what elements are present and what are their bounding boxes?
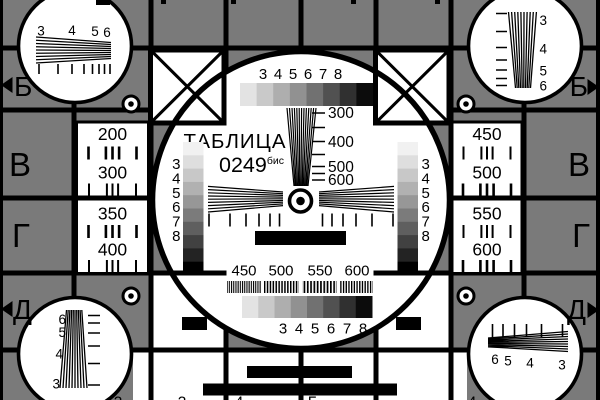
corner-tl-label: 4 (68, 23, 76, 38)
left-panel-value: 350 (98, 204, 127, 224)
target-icon (123, 96, 139, 112)
reference-bar-long (203, 384, 397, 396)
margin-letter-right: В (568, 146, 590, 183)
frequency-labels: 300 400 500 600 (328, 105, 354, 189)
cropped-glyph-stub (96, 0, 110, 5)
corner-br-label: 4 (526, 356, 534, 371)
target-icon (458, 96, 474, 112)
margin-letter-left: В (9, 146, 31, 183)
cropped-glyph: 3 (178, 395, 187, 400)
corner-tl-label: 5 (91, 24, 99, 39)
corner-br-label: 6 (491, 352, 499, 367)
crosshatch-box-top-left (151, 50, 225, 123)
definition-panel-left: 200 300 350 400 (77, 122, 149, 274)
margin-letter-left: Д (13, 294, 32, 325)
left-column-label: 8 (172, 228, 180, 245)
cropped-glyph: 4 (468, 395, 477, 400)
margin-letter-right: Б (570, 71, 588, 102)
cropped-glyph: Г (308, 395, 317, 400)
right-panel-value: 500 (472, 163, 501, 183)
grayscale-staircase-top (240, 83, 374, 106)
bottom-band (133, 353, 467, 400)
card-code-suffix: бис (267, 155, 284, 167)
grayscale-bottom-label: 6 (327, 321, 335, 338)
right-panel-value: 550 (472, 204, 501, 224)
freq-label: 600 (328, 172, 354, 189)
grayscale-top-label: 3 (259, 66, 267, 83)
corner-tr-label: 5 (540, 64, 548, 79)
grayscale-bottom-label: 4 (295, 321, 303, 338)
corner-tr-label: 3 (540, 13, 548, 28)
grayscale-column-left-labels: 3 4 5 6 7 8 (172, 156, 180, 245)
center-black-bar (255, 231, 346, 245)
grayscale-staircase-bottom (242, 296, 373, 318)
grayscale-bottom-label: 7 (343, 321, 351, 338)
definition-panel-right: 450 500 550 600 (452, 122, 522, 274)
right-column-label: 8 (422, 228, 430, 245)
burst-label: 450 (231, 263, 256, 280)
burst-label: 550 (307, 263, 332, 280)
corner-circle-bottom-right: 6 5 4 3 (469, 298, 582, 400)
corner-circle-top-left: 3 4 5 6 (19, 0, 132, 103)
target-icon (458, 288, 474, 304)
margin-letter-left: Б (14, 71, 32, 102)
margin-letter-right: Г (572, 217, 590, 254)
cropped-glyph: 4 (235, 395, 244, 400)
grayscale-top-label: 5 (289, 66, 297, 83)
grayscale-column-right (398, 142, 419, 276)
reference-bar-short (247, 366, 352, 378)
margin-letter-left: Г (12, 217, 30, 254)
cropped-glyph: 3 (114, 395, 123, 400)
right-panel-value: 600 (472, 240, 501, 260)
corner-bl-label: 4 (55, 347, 63, 362)
corner-br-label: 3 (558, 358, 566, 373)
grayscale-top-label: 7 (319, 66, 327, 83)
corner-circle-top-right: 3 4 5 6 (469, 0, 582, 103)
grayscale-bottom-label: 3 (279, 321, 287, 338)
grayscale-column-right-labels: 3 4 5 6 7 8 (422, 156, 430, 245)
grayscale-top-label: 6 (304, 66, 312, 83)
grayscale-bottom-label: 5 (311, 321, 319, 338)
corner-bl-label: 5 (58, 325, 66, 340)
corner-br-label: 5 (504, 354, 512, 369)
corner-tl-label: 3 (37, 24, 45, 39)
grayscale-top-label: 8 (334, 66, 342, 83)
freq-label: 300 (328, 105, 354, 122)
crosshatch-box-top-right (376, 50, 450, 123)
left-panel-value: 300 (98, 163, 127, 183)
test-card-tit-0249: 3 4 5 6 7 8 300 400 500 600 ТАБЛИЦА 0249… (0, 0, 600, 400)
left-panel-value: 200 (98, 124, 127, 144)
black-mark-right (396, 317, 421, 330)
center-bullseye (290, 190, 312, 212)
card-code-number: 0249 (219, 153, 267, 177)
target-icon (123, 288, 139, 304)
corner-tr-label: 6 (540, 79, 548, 94)
cropped-glyph: 4 (372, 395, 381, 400)
corner-tl-label: 6 (103, 25, 111, 40)
burst-label: 600 (344, 263, 369, 280)
grayscale-column-left (183, 142, 204, 276)
burst-label: 500 (268, 263, 293, 280)
grayscale-top-label: 4 (274, 66, 282, 83)
freq-label: 400 (328, 134, 354, 151)
corner-circle-bottom-left: 6 5 4 3 (19, 298, 132, 400)
margin-letter-right: Д (567, 294, 586, 325)
right-panel-value: 450 (472, 124, 501, 144)
corner-bl-label: 3 (52, 377, 60, 392)
black-mark-left (182, 317, 207, 330)
left-panel-value: 400 (98, 240, 127, 260)
corner-tr-label: 4 (540, 42, 548, 57)
